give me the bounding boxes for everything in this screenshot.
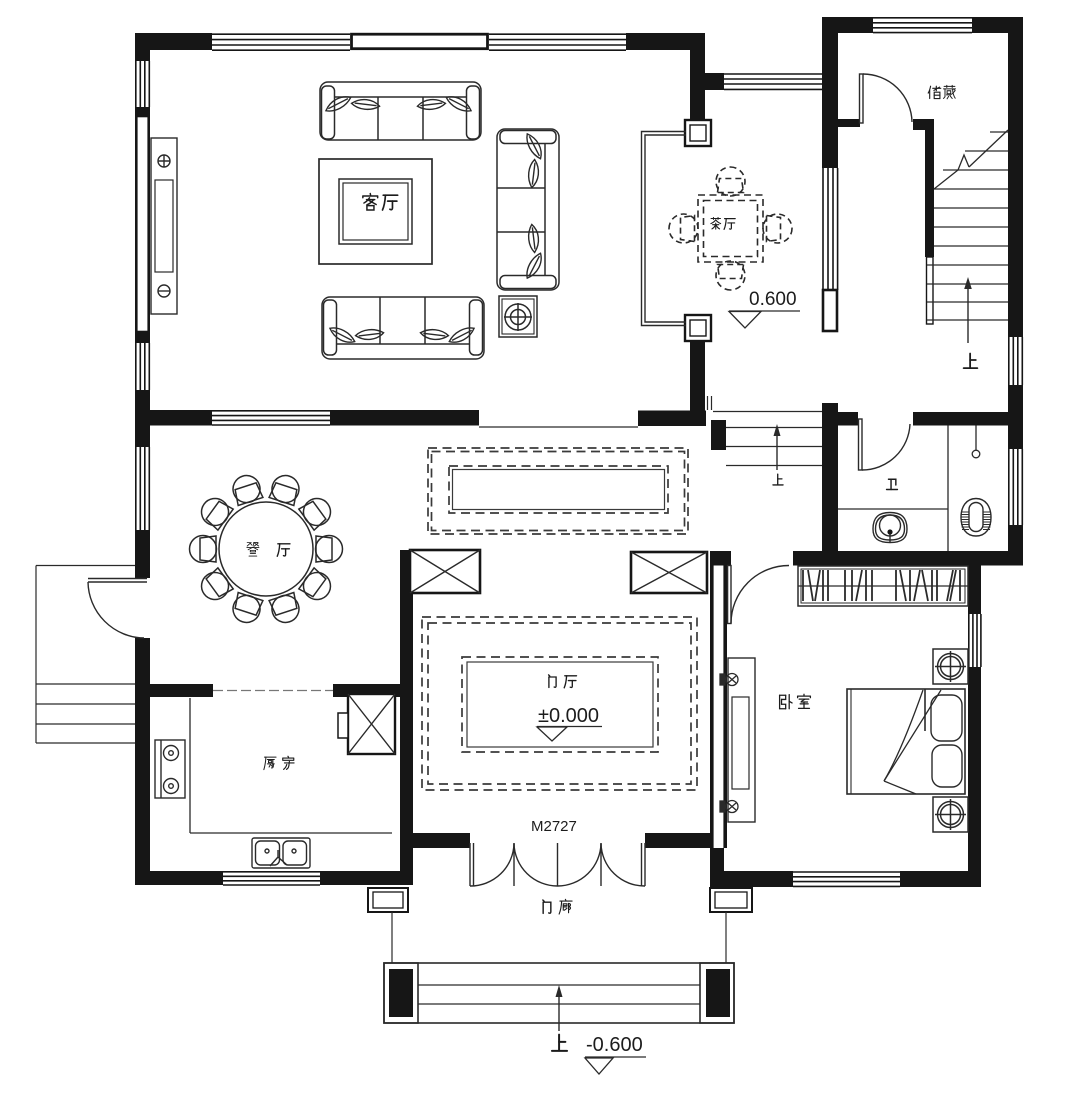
svg-text:M2727: M2727	[531, 818, 577, 835]
svg-text:0.600: 0.600	[749, 289, 797, 310]
svg-text:-0.600: -0.600	[586, 1034, 643, 1056]
svg-text:±0.000: ±0.000	[538, 705, 599, 727]
